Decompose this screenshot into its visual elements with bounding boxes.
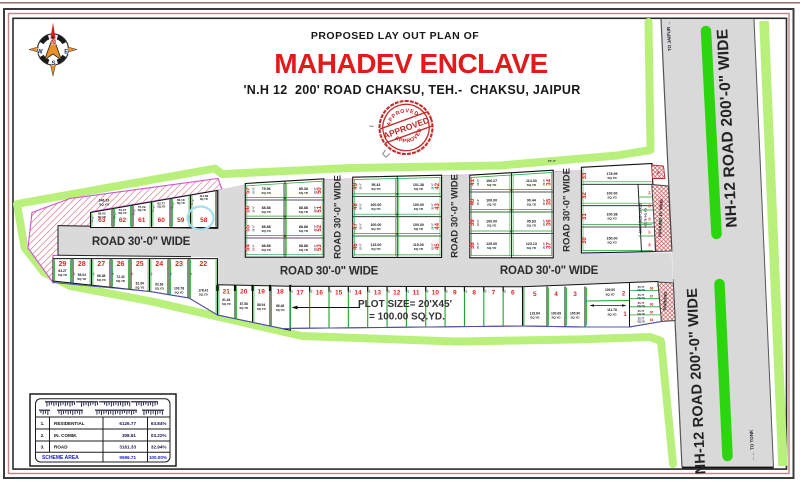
svg-text:SQ.YD: SQ.YD — [97, 278, 106, 282]
svg-text:SQ.YD: SQ.YD — [637, 320, 645, 323]
svg-text:11: 11 — [413, 290, 420, 297]
svg-text:65: 65 — [650, 311, 654, 315]
svg-text:SQ.YD: SQ.YD — [299, 210, 309, 214]
svg-text:SQ.YD: SQ.YD — [637, 297, 645, 300]
svg-text:SQ.YD: SQ.YD — [607, 217, 617, 221]
svg-text:47: 47 — [353, 222, 359, 229]
svg-text:33: 33 — [582, 172, 588, 179]
svg-text:SQ.YD: SQ.YD — [607, 241, 617, 245]
svg-text:SQ.YD: SQ.YD — [98, 215, 106, 219]
svg-text:19: 19 — [258, 289, 266, 296]
svg-text:38: 38 — [470, 242, 476, 249]
svg-text:44: 44 — [435, 222, 441, 229]
svg-text:20'-0": 20'-0" — [360, 203, 363, 210]
svg-text:3.: 3. — [41, 444, 45, 449]
svg-text:58: 58 — [200, 217, 208, 224]
svg-text:PARKING: PARKING — [662, 291, 668, 310]
svg-text:35: 35 — [546, 198, 552, 205]
svg-text:66: 66 — [650, 303, 654, 307]
svg-text:IN. COMM.: IN. COMM. — [54, 433, 77, 438]
svg-text:30: 30 — [582, 237, 588, 244]
svg-text:51: 51 — [317, 205, 323, 212]
svg-text:SQ.YD: SQ.YD — [299, 248, 309, 252]
svg-text:68: 68 — [650, 287, 654, 291]
svg-text:59: 59 — [177, 217, 185, 224]
svg-text:SQ.YD: SQ.YD — [607, 196, 617, 200]
svg-text:ROAD 30'-0" WIDE: ROAD 30'-0" WIDE — [280, 266, 379, 278]
svg-text:SQ.YD: SQ.YD — [371, 227, 381, 231]
svg-text:39: 39 — [470, 219, 476, 226]
svg-text:54: 54 — [648, 191, 652, 195]
svg-text:SQ.YD: SQ.YD — [116, 279, 125, 283]
svg-text:SQ.YD: SQ.YD — [414, 247, 424, 251]
svg-text:3161.33: 3161.33 — [119, 444, 136, 449]
svg-text:43: 43 — [435, 203, 441, 210]
svg-text:SQ.YD: SQ.YD — [606, 292, 615, 296]
svg-text:20'-0": 20'-0" — [360, 243, 363, 250]
svg-text:SQ.YD: SQ.YD — [261, 210, 271, 214]
svg-text:67: 67 — [650, 295, 654, 299]
svg-text:58: 58 — [648, 243, 652, 247]
svg-text:SQ.YD: SQ.YD — [118, 211, 126, 215]
svg-text:37: 37 — [546, 242, 552, 249]
svg-text:SQ.YD: SQ.YD — [157, 204, 165, 208]
svg-text:20'-0": 20'-0" — [477, 179, 480, 186]
svg-text:SQ.YD: SQ.YD — [261, 191, 271, 195]
svg-text:6126.77: 6126.77 — [119, 421, 136, 426]
svg-text:SQ.YD: SQ.YD — [552, 316, 561, 320]
svg-text:20'-0": 20'-0" — [252, 187, 255, 194]
svg-text:42: 42 — [435, 182, 441, 189]
svg-text:48: 48 — [353, 203, 359, 210]
svg-text:SQ.YD: SQ.YD — [371, 207, 381, 211]
svg-text:21: 21 — [223, 289, 231, 296]
svg-text:29: 29 — [59, 261, 67, 268]
svg-text:SQ.YD: SQ.YD — [527, 183, 537, 187]
svg-text:52: 52 — [317, 224, 323, 231]
svg-text:SQ.YD: SQ.YD — [155, 287, 164, 291]
svg-text:SHOP SIZE=10'X25': SHOP SIZE=10'X25' — [639, 203, 643, 234]
svg-text:SQ.YD: SQ.YD — [487, 223, 497, 227]
svg-text:56: 56 — [246, 205, 252, 212]
svg-text:SQ.YD: SQ.YD — [222, 302, 231, 306]
svg-text:63.84%: 63.84% — [151, 421, 167, 426]
svg-text:SQ.YD: SQ.YD — [257, 307, 266, 311]
svg-text:25'-0": 25'-0" — [548, 159, 557, 163]
svg-text:E: E — [64, 49, 68, 55]
svg-text:SQ.YD: SQ.YD — [58, 273, 67, 277]
svg-text:100.00%: 100.00% — [149, 455, 167, 460]
svg-text:SQ.YD: SQ.YD — [527, 203, 537, 207]
svg-text:54: 54 — [246, 244, 252, 251]
svg-text:12: 12 — [393, 290, 401, 297]
svg-text:49: 49 — [353, 182, 359, 189]
svg-text:24: 24 — [155, 261, 163, 268]
svg-text:SQ.YD: SQ.YD — [527, 223, 537, 227]
svg-text:46: 46 — [353, 243, 359, 250]
svg-text:SQ.YD: SQ.YD — [135, 286, 144, 290]
svg-text:36: 36 — [546, 219, 552, 226]
svg-text:SQ.YD: SQ.YD — [199, 293, 208, 297]
svg-text:5: 5 — [533, 291, 537, 298]
svg-text:32: 32 — [582, 192, 588, 199]
svg-text:9596.71: 9596.71 — [119, 455, 136, 460]
svg-text:SQ.YD: SQ.YD — [138, 208, 146, 212]
svg-text:ROAD 30'-0" WIDE: ROAD 30'-0" WIDE — [92, 236, 191, 248]
svg-text:64: 64 — [650, 318, 654, 322]
svg-text:56: 56 — [648, 217, 652, 221]
svg-text:31: 31 — [582, 213, 588, 220]
svg-text:45: 45 — [435, 243, 441, 250]
svg-text:40: 40 — [470, 198, 476, 205]
svg-text:57: 57 — [648, 230, 652, 234]
svg-text:10: 10 — [432, 290, 440, 297]
svg-text:1.: 1. — [41, 421, 45, 426]
svg-text:17: 17 — [296, 290, 304, 297]
svg-text:4: 4 — [554, 291, 558, 298]
svg-text:SQ.YD: SQ.YD — [571, 316, 580, 320]
svg-text:RESIDENTIAL: RESIDENTIAL — [54, 421, 85, 426]
svg-text:32.94%: 32.94% — [151, 444, 167, 449]
svg-text:20'-0": 20'-0" — [252, 206, 255, 213]
svg-text:SQ.YD: SQ.YD — [99, 203, 109, 207]
svg-text:SQ.YD: SQ.YD — [530, 316, 539, 320]
svg-text:55: 55 — [246, 224, 252, 231]
svg-text:25: 25 — [136, 261, 144, 268]
svg-text:ROAD 30'-0" WIDE: ROAD 30'-0" WIDE — [333, 175, 344, 259]
svg-text:20'-0": 20'-0" — [252, 225, 255, 232]
svg-text:20'-0": 20'-0" — [477, 242, 480, 249]
svg-text:03.22%: 03.22% — [151, 433, 167, 438]
svg-text:SQ.YD: SQ.YD — [371, 247, 381, 251]
svg-text:SQ.YD: SQ.YD — [487, 246, 497, 250]
svg-text:SQ.YD: SQ.YD — [637, 305, 645, 308]
svg-text:34: 34 — [546, 178, 552, 185]
svg-text:SQ.YD: SQ.YD — [276, 308, 285, 312]
svg-text:SQ.YD: SQ.YD — [414, 227, 424, 231]
svg-text:SQ.YD: SQ.YD — [414, 207, 424, 211]
svg-text:E: E — [657, 170, 660, 175]
svg-text:8: 8 — [472, 290, 476, 297]
svg-text:15: 15 — [335, 290, 343, 297]
svg-text:20'-0": 20'-0" — [477, 199, 480, 206]
svg-text:SQ.YD: SQ.YD — [371, 187, 381, 191]
svg-text:SQ.YD: SQ.YD — [200, 197, 208, 201]
svg-text:20'-0": 20'-0" — [252, 244, 255, 251]
svg-text:13: 13 — [374, 290, 382, 297]
svg-text:6: 6 — [511, 290, 515, 297]
svg-text:22: 22 — [199, 261, 207, 268]
svg-text:SQ.YD: SQ.YD — [487, 203, 497, 207]
svg-text:23: 23 — [175, 261, 183, 268]
svg-text:PLOT SIZE= 20'X45': PLOT SIZE= 20'X45' — [358, 299, 452, 310]
svg-text:SQ.YD: SQ.YD — [637, 289, 645, 292]
svg-text:ROAD 30'-0" WIDE: ROAD 30'-0" WIDE — [450, 174, 461, 258]
svg-text:28: 28 — [78, 261, 86, 268]
svg-text:7: 7 — [492, 290, 496, 297]
svg-text:41: 41 — [470, 178, 476, 185]
svg-text:SQ.YD: SQ.YD — [607, 176, 617, 180]
svg-text:308.61: 308.61 — [122, 433, 136, 438]
svg-text:SCHEME AREA: SCHEME AREA — [42, 455, 79, 461]
svg-text:18: 18 — [277, 289, 285, 296]
svg-text:14: 14 — [354, 290, 362, 297]
svg-text:MAHADEV ENCLAVE: MAHADEV ENCLAVE — [274, 48, 548, 79]
svg-text:2.: 2. — [41, 433, 45, 438]
svg-text:SQ.YD: SQ.YD — [487, 183, 497, 187]
svg-text:SQ.YD: SQ.YD — [261, 248, 271, 252]
svg-text:ROAD 30'-0" WIDE: ROAD 30'-0" WIDE — [500, 265, 599, 277]
svg-text:SQ.YD: SQ.YD — [175, 291, 184, 295]
svg-text:N: N — [51, 40, 56, 47]
svg-text:60: 60 — [158, 217, 166, 224]
svg-text:SQ.YD: SQ.YD — [177, 201, 185, 205]
svg-text:62: 62 — [119, 217, 127, 224]
svg-text:= 100.00 SQ.YD.: = 100.00 SQ.YD. — [369, 312, 445, 323]
svg-text:SQ.YD: SQ.YD — [299, 191, 309, 195]
svg-text:SQ.YD: SQ.YD — [527, 246, 537, 250]
svg-text:SQ.YD: SQ.YD — [77, 277, 86, 281]
svg-text:ROAD 30'-0" WIDE: ROAD 30'-0" WIDE — [562, 168, 573, 252]
svg-text:SQ.YD: SQ.YD — [239, 306, 248, 310]
svg-text:53: 53 — [317, 244, 323, 251]
svg-text:W: W — [37, 49, 43, 55]
svg-text:55: 55 — [648, 204, 652, 208]
svg-text:SQ.YD: SQ.YD — [608, 312, 617, 316]
svg-text:SQ.YD: SQ.YD — [414, 187, 424, 191]
svg-text:57: 57 — [246, 187, 252, 194]
svg-text:16: 16 — [316, 290, 324, 297]
svg-text:20: 20 — [240, 289, 248, 296]
svg-text:20'-0": 20'-0" — [360, 223, 363, 230]
svg-text:SQ.YD: SQ.YD — [261, 229, 271, 233]
svg-text:SQ.YD: SQ.YD — [299, 229, 309, 233]
svg-text:20'-0": 20'-0" — [477, 220, 480, 227]
svg-text:ROAD: ROAD — [54, 444, 68, 449]
svg-text:3: 3 — [573, 291, 577, 298]
svg-text:PROPOSED LAY OUT PLAN OF: PROPOSED LAY OUT PLAN OF — [311, 30, 479, 42]
svg-text:9: 9 — [453, 290, 457, 297]
svg-text:20'-0": 20'-0" — [360, 183, 363, 190]
svg-text:50: 50 — [317, 187, 323, 194]
svg-text:61: 61 — [138, 217, 146, 224]
svg-text:SQ.YD: SQ.YD — [637, 313, 645, 316]
svg-text:S: S — [51, 61, 55, 67]
svg-text:'N.H 12 200' ROAD CHAKSU, TEH: 'N.H 12 200' ROAD CHAKSU, TEH.- CHAKSU, … — [243, 83, 580, 97]
svg-text:27: 27 — [97, 261, 105, 268]
svg-text:26: 26 — [117, 261, 125, 268]
